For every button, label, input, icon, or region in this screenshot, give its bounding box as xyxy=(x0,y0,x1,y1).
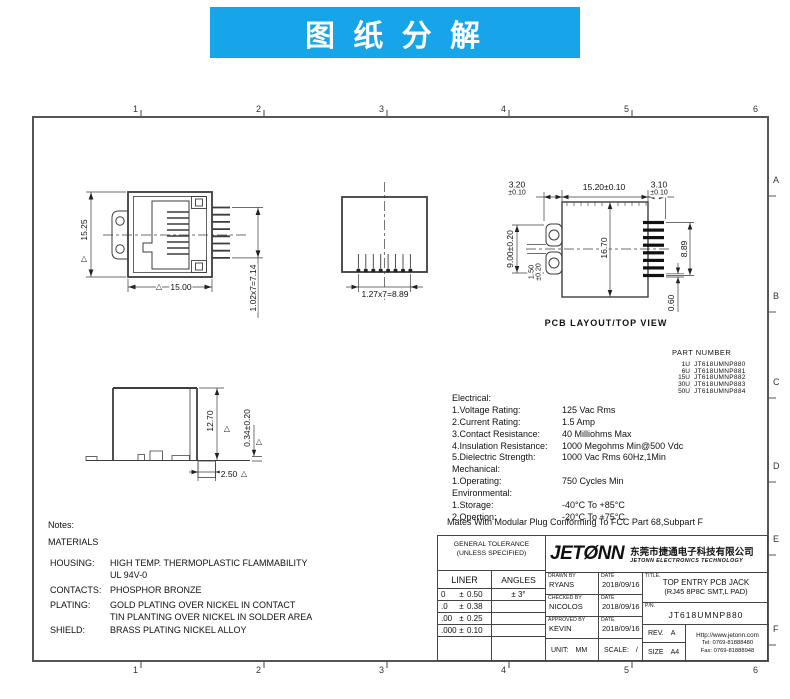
scale-cell: SCALE:/ xyxy=(599,639,643,662)
spec-section-electrical: Electrical: xyxy=(452,393,772,405)
notes-title: Notes: xyxy=(48,519,74,531)
note-label: SHIELD: xyxy=(50,624,85,636)
spec-row: 5.Dielectric Strength:1000 Vac Rms 60Hz,… xyxy=(452,452,772,464)
dim-pcb-slot-tol: ±0.20 xyxy=(536,262,543,281)
jetonn-logo: JETØNN xyxy=(550,543,624,565)
revision-triangle-icon: △ xyxy=(224,425,230,433)
note-label: PLATING: xyxy=(50,599,90,611)
company-header: JETØNN 东莞市捷通电子科技有限公司 JETONN ELECTRONICS … xyxy=(546,536,769,573)
drawn-date-cell: DATE 2018/09/16 xyxy=(599,573,643,595)
dim-pcb-body-height: 16.70 xyxy=(600,236,609,259)
tolerance-empty-cell xyxy=(492,637,546,662)
drawing-title-cell: TITLE. TOP ENTRY PCB JACK (RJ45 8P8C SMT… xyxy=(643,573,769,603)
note-value: BRASS PLATING NICKEL ALLOY xyxy=(110,624,247,636)
unit-cell: UNIT:MM xyxy=(546,639,599,662)
tolerance-col-angles: ANGLES xyxy=(492,571,546,589)
zone-col-bottom-6: 6 xyxy=(753,666,758,675)
zone-col-top-5: 5 xyxy=(624,105,629,114)
dim-pcb-right-pad: 3.10 ±0.10 xyxy=(650,180,667,197)
tolerance-row: 0±0.50 xyxy=(438,589,492,601)
dim-side-height: 12.70 xyxy=(206,409,215,432)
dim-front-width: 15.00 xyxy=(169,283,192,292)
zone-row-a: A xyxy=(773,176,779,185)
revision-triangle-icon: △ xyxy=(256,438,262,446)
dim-side-standoff: 0.34±0.20 xyxy=(243,408,252,448)
dim-pcb-body-width: 15.20±0.10 xyxy=(582,183,626,192)
tolerance-angle xyxy=(492,613,546,625)
dim-topview-pin-span: 1.27x7=8.89 xyxy=(360,290,409,299)
tolerance-header: GENERAL TOLERANCE (UNLESS SPECIFIED) xyxy=(438,536,546,571)
zone-col-top-3: 3 xyxy=(379,105,384,114)
revision-triangle-icon: △ xyxy=(81,255,87,263)
drawn-by-cell: DRAWN BY RYANS xyxy=(546,573,599,595)
part-number-title: PART NUMBER xyxy=(672,348,784,357)
checked-date-cell: DATE 2018/09/16 xyxy=(599,595,643,617)
note-label: HOUSING: xyxy=(50,557,95,569)
spec-section-mechanical: Mechanical: xyxy=(452,464,772,476)
contact-cell: Http://www.jetonn.com Tel: 0769-81888480… xyxy=(686,625,769,662)
pcb-view-label: PCB LAYOUT/TOP VIEW xyxy=(545,318,668,328)
spec-row: 3.Contact Resistance:40 Milliohms Max xyxy=(452,429,772,441)
zone-row-b: B xyxy=(773,292,779,301)
title-block: GENERAL TOLERANCE (UNLESS SPECIFIED) LIN… xyxy=(437,535,768,661)
note-value: HIGH TEMP. THERMOPLASTIC FLAMMABILITY UL… xyxy=(110,557,308,581)
zone-col-top-1: 1 xyxy=(133,105,138,114)
dim-front-pin-span: 1.02x7=7.14 xyxy=(249,263,258,312)
company-name: 东莞市捷通电子科技有限公司 JETONN ELECTRONICS TECHNOL… xyxy=(630,544,754,564)
company-fax: Fax: 0769-81888948 xyxy=(701,648,755,655)
zone-row-e: E xyxy=(773,535,779,544)
spec-row: 1.Voltage Rating:125 Vac Rms xyxy=(452,405,772,417)
approved-by-cell: APPROVED BY KEVIN xyxy=(546,617,599,639)
spec-footer: Mates With Modular Plug Conforming To FC… xyxy=(447,517,703,527)
zone-row-f: F xyxy=(773,625,779,634)
spec-list: Electrical: 1.Voltage Rating:125 Vac Rms… xyxy=(452,393,772,524)
zone-col-bottom-4: 4 xyxy=(501,666,506,675)
part-number-cell: P/N. JT618UMNP880 xyxy=(643,603,769,625)
tolerance-row: .0±0.38 xyxy=(438,601,492,613)
tolerance-col-liner: LINER xyxy=(438,571,492,589)
approved-date-cell: DATE 2018/09/16 xyxy=(599,617,643,639)
company-tel: Tel: 0769-81888480 xyxy=(702,640,753,647)
zone-col-top-6: 6 xyxy=(753,105,758,114)
dim-pcb-slot: 1.50 xyxy=(527,264,535,281)
note-value: GOLD PLATING OVER NICKEL IN CONTACT TIN … xyxy=(110,599,312,623)
drawing-sheet: 图 纸 分 解 xyxy=(0,0,790,699)
rev-cell: REV.A xyxy=(643,625,686,643)
zone-col-bottom-2: 2 xyxy=(256,666,261,675)
spec-row: 4.Insulation Resistance:1000 Megohms Min… xyxy=(452,441,772,453)
spec-row: 1.Storage:-40°C To +85°C xyxy=(452,500,772,512)
tolerance-row: .00±0.25 xyxy=(438,613,492,625)
notes-subtitle: MATERIALS xyxy=(48,536,98,548)
tolerance-angle: ± 3° xyxy=(492,589,546,601)
revision-triangle-icon: △ xyxy=(156,283,162,291)
revision-triangle-icon: △ xyxy=(241,470,247,478)
spec-row: 2.Current Rating:1.5 Amp xyxy=(452,417,772,429)
zone-col-bottom-5: 5 xyxy=(624,666,629,675)
size-cell: SIZEA4 xyxy=(643,643,686,662)
dim-pcb-left-pad: 3.20 ±0.10 xyxy=(508,180,525,197)
zone-row-d: D xyxy=(773,462,780,471)
note-value: PHOSPHOR BRONZE xyxy=(110,584,202,596)
dim-front-height: 15.25 xyxy=(80,218,89,241)
company-website: Http://www.jetonn.com xyxy=(696,632,759,639)
zone-col-bottom-3: 3 xyxy=(379,666,384,675)
tolerance-angle xyxy=(492,601,546,613)
dim-side-foot: 2.50 xyxy=(220,470,239,479)
dim-pcb-hole-span: 9.00±0.20 xyxy=(506,229,515,269)
spec-section-environmental: Environmental: xyxy=(452,488,772,500)
zone-col-top-4: 4 xyxy=(501,105,506,114)
dim-pcb-pad-width: 0.60 xyxy=(667,294,676,313)
tolerance-angle xyxy=(492,625,546,637)
tolerance-row: .000±0.10 xyxy=(438,625,492,637)
tolerance-empty-cell xyxy=(438,637,492,662)
dim-pcb-pad-span: 8.89 xyxy=(680,240,689,259)
checked-by-cell: CHECKED BY NICOLOS xyxy=(546,595,599,617)
spec-row: 1.Operating:750 Cycles Min xyxy=(452,476,772,488)
part-number-table: PART NUMBER 1U JT618UMNP880 6U JT618UMNP… xyxy=(672,348,784,396)
zone-col-bottom-1: 1 xyxy=(133,666,138,675)
zone-col-top-2: 2 xyxy=(256,105,261,114)
note-label: CONTACTS: xyxy=(50,584,101,596)
